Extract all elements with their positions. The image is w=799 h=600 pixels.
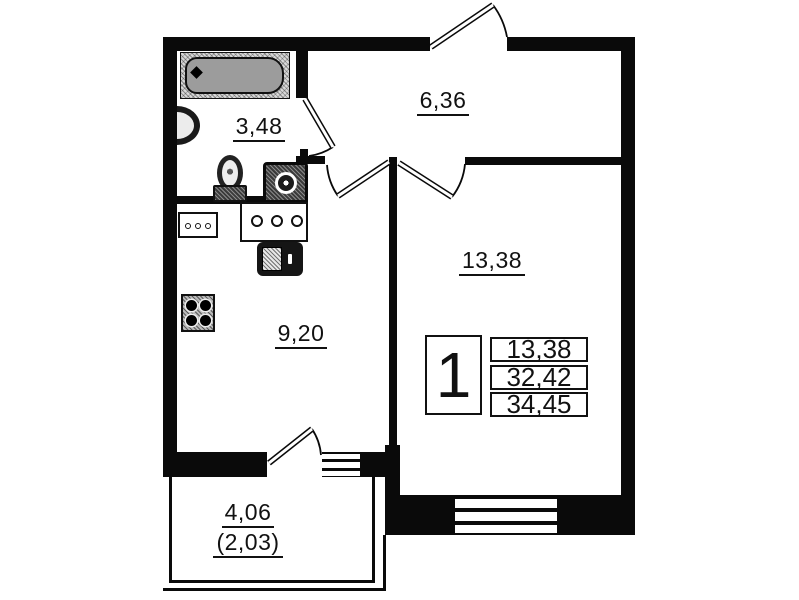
wall-right — [621, 37, 635, 535]
wash-basin-icon — [177, 106, 200, 145]
entrance-door-icon — [431, 5, 507, 47]
kitchen-sink-counter-icon — [240, 202, 308, 242]
bathtub-icon — [180, 52, 290, 99]
room-label-balcony-coefficient: (2,03) — [188, 529, 308, 558]
washing-machine-icon — [263, 162, 308, 203]
wall-kitchen-bottom-right — [360, 452, 385, 477]
legend-living-area: 13,38 — [490, 337, 588, 362]
room-label-living-room: 13,38 — [432, 247, 552, 276]
wall-room-bottom-right — [557, 495, 635, 535]
wall-partition-kitchen-room — [389, 157, 397, 452]
wall-top-right — [507, 37, 635, 51]
toilet-icon — [213, 155, 247, 203]
wall-kitchen-bottom-left — [163, 452, 267, 477]
balcony-wall-right — [372, 477, 375, 583]
legend-area-without-balcony: 32,42 — [490, 365, 588, 390]
living-room-door-icon — [399, 163, 465, 197]
living-room-window-icon — [455, 495, 557, 535]
kitchen-door-icon — [327, 162, 389, 196]
wall-hallway-bottom-right — [465, 157, 621, 165]
balcony-outer-line-right — [383, 535, 386, 591]
room-label-balcony: 4,06 — [188, 499, 308, 528]
wall-room-bottom-left — [400, 495, 455, 535]
room-label-bathroom: 3,48 — [199, 113, 319, 142]
balcony-outer-line-bottom — [163, 588, 386, 591]
balcony-door-icon — [269, 429, 321, 463]
room-label-hallway: 6,36 — [383, 87, 503, 116]
legend-rooms-count: 1 — [425, 335, 482, 415]
stove-icon — [181, 294, 215, 332]
area-legend-table: 1 13,38 32,42 34,45 — [425, 335, 589, 419]
wall-top-left — [163, 37, 430, 51]
balcony-wall-left — [169, 477, 172, 583]
balcony-wall-bottom — [169, 580, 375, 583]
cabinet-icon — [178, 212, 218, 238]
wall-bathroom-right — [296, 51, 308, 98]
oven-icon — [257, 242, 303, 276]
legend-total-area: 34,45 — [490, 392, 588, 417]
floor-plan: 3,48 6,36 13,38 9,20 4,06 (2,03) 1 13,38… — [0, 0, 799, 600]
kitchen-window-icon — [322, 452, 360, 477]
wall-partition-lower — [385, 445, 400, 535]
wall-left — [163, 37, 177, 477]
room-label-kitchen: 9,20 — [241, 320, 361, 349]
